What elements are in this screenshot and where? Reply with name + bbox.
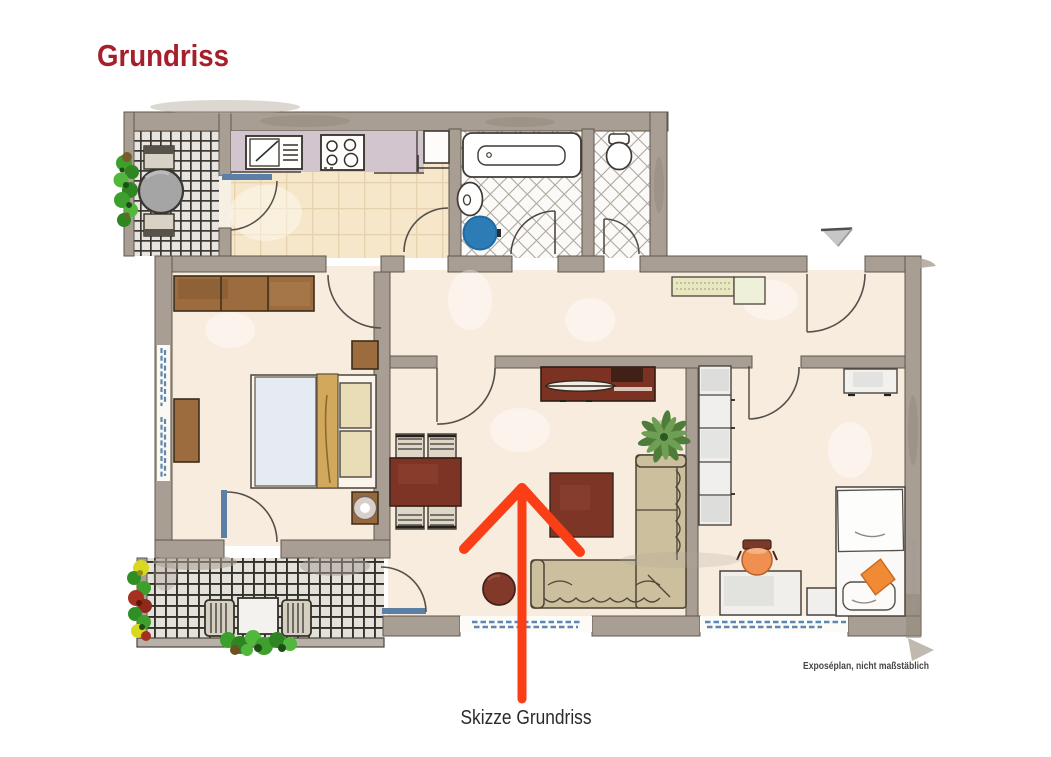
svg-text:Skizze Grundriss: Skizze Grundriss (461, 707, 592, 729)
svg-text:Grundriss: Grundriss (97, 38, 229, 73)
svg-text:Exposéplan, nicht maßstäblich: Exposéplan, nicht maßstäblich (803, 660, 929, 672)
svg-text:Illustration:GlimmaGrafik: Illustration:GlimmaGrafik (911, 540, 918, 612)
